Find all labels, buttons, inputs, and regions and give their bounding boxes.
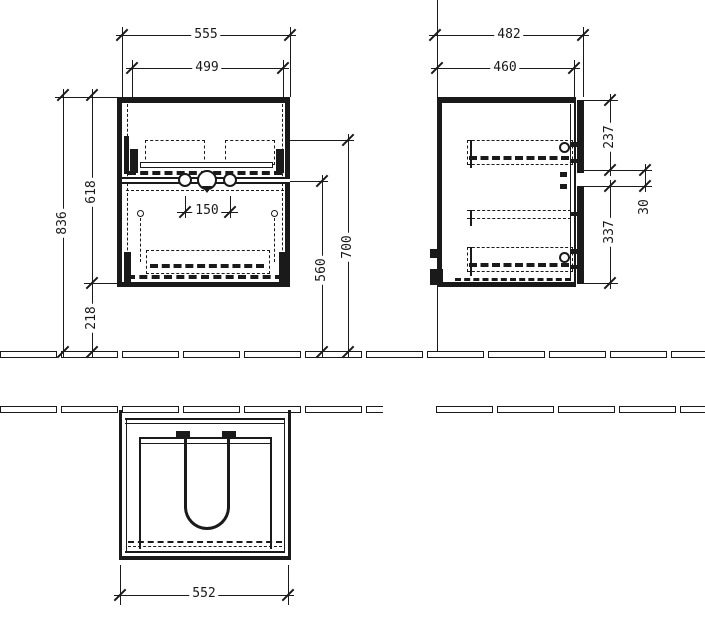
screw-point-left xyxy=(137,210,144,217)
drawer-side-right xyxy=(270,437,272,549)
dim-label-carcass-height: 618 xyxy=(85,177,99,206)
hatch-segment xyxy=(244,351,301,358)
hatch-segment xyxy=(61,406,118,413)
below-rail-hidden-line xyxy=(126,190,284,191)
drain-knockout-right xyxy=(223,173,237,187)
bottom-drawer-box xyxy=(146,250,270,274)
front-tab xyxy=(570,212,577,216)
dim-label-drain-spacing: 150 xyxy=(192,204,221,218)
hatch-segment xyxy=(183,351,240,358)
hatch-segment xyxy=(122,351,179,358)
side-mid-hidden-line xyxy=(467,218,571,219)
ext-line xyxy=(290,27,291,97)
dim-label-rail-height: 560 xyxy=(315,255,329,284)
technical-drawing: 555 499 836 618 218 150 xyxy=(0,0,705,628)
side-floor-dash-strip xyxy=(455,278,571,281)
dim-label-front-gap: 30 xyxy=(638,196,652,218)
drawer-back-line xyxy=(139,437,272,439)
hatch-segment xyxy=(436,406,493,413)
top-drawer-hardware-right xyxy=(276,149,284,173)
dim-label-upper-front: 237 xyxy=(603,122,617,151)
drawer-back-inner-line xyxy=(139,443,272,444)
side-top-drawer-dash-strip xyxy=(469,156,569,160)
ext-line xyxy=(583,27,584,97)
hatch-segment xyxy=(610,351,667,358)
ext-line xyxy=(584,283,618,284)
side-top-adjust-cam xyxy=(559,142,570,153)
side-panel-inner-left xyxy=(126,418,127,552)
front-clip-upper xyxy=(560,172,567,177)
dim-label-bottom-clearance: 218 xyxy=(85,303,99,332)
hatch-segment xyxy=(0,406,57,413)
bottom-drawer-dash-strip xyxy=(127,275,283,279)
side-top-drawer-box xyxy=(467,140,573,165)
bottom-dash-line xyxy=(128,541,282,543)
hatch-segment xyxy=(497,406,554,413)
ext-line xyxy=(288,565,289,605)
front-clip-lower xyxy=(560,184,567,189)
upper-drawer-front xyxy=(577,100,584,173)
hatch-segment xyxy=(680,406,705,413)
side-bottom-drawer-bracket xyxy=(470,247,472,276)
dim-label-total-height: 836 xyxy=(56,208,70,237)
bottom-drawer-dash-strip-inner xyxy=(150,264,264,268)
side-mid-hidden-line xyxy=(467,210,571,211)
bottom-drawer-hidden-edge-right xyxy=(274,218,275,262)
back-panel-line xyxy=(125,418,285,420)
side-panel-inner-right xyxy=(284,418,285,552)
hatch-segment xyxy=(305,406,362,413)
hatch-segment xyxy=(488,351,545,358)
bottom-dash-line-thin xyxy=(128,546,282,547)
top-drawer-bottom-rail xyxy=(140,162,273,168)
hatch-segment xyxy=(558,406,615,413)
wall-mount-bracket-lower xyxy=(430,269,443,285)
wall-line-right xyxy=(436,406,705,413)
back-panel-inner-line xyxy=(125,423,285,424)
ext-line xyxy=(122,27,123,97)
hatch-segment xyxy=(427,351,484,358)
drain-knockout-left xyxy=(178,173,192,187)
hatch-segment xyxy=(671,351,705,358)
lower-drawer-front xyxy=(577,186,584,284)
ext-line xyxy=(120,565,121,605)
hatch-segment xyxy=(366,406,383,413)
cutout-tab-left xyxy=(176,431,190,438)
wall-mount-bracket-upper xyxy=(430,249,439,258)
ext-line xyxy=(185,196,186,218)
hatch-segment xyxy=(0,351,57,358)
dim-label-carcass-depth: 460 xyxy=(490,61,519,75)
side-bottom-drawer-dash-strip xyxy=(469,263,569,267)
dim-label-lower-front: 337 xyxy=(603,217,617,246)
bottom-drawer-hidden-edge-left xyxy=(140,218,141,262)
top-drawer-slide-left xyxy=(124,136,129,174)
drawer-side-left xyxy=(139,437,141,549)
hatch-segment xyxy=(366,351,423,358)
dim-label-overall-depth: 482 xyxy=(494,28,523,42)
screw-point-right xyxy=(271,210,278,217)
ext-line xyxy=(584,100,618,101)
floor-line xyxy=(0,351,705,358)
hatch-segment xyxy=(305,351,362,358)
siphon-cutout-arc xyxy=(184,470,230,530)
dim-label-inner-width: 499 xyxy=(192,61,221,75)
dim-label-overall-width: 555 xyxy=(191,28,220,42)
side-top-drawer-bracket xyxy=(470,140,472,168)
bottom-front-line xyxy=(125,551,285,553)
side-bottom-adjust-cam xyxy=(559,252,570,263)
side-mid-bracket xyxy=(470,210,472,226)
dim-label-interior-height: 700 xyxy=(341,232,355,261)
hatch-segment xyxy=(549,351,606,358)
side-bottom-drawer-box xyxy=(467,247,573,272)
hatch-segment xyxy=(619,406,676,413)
ext-line xyxy=(230,196,231,218)
top-drawer-slide-right xyxy=(285,136,290,174)
dim-label-bottom-width: 552 xyxy=(189,587,218,601)
top-drawer-hardware-left xyxy=(130,149,138,173)
